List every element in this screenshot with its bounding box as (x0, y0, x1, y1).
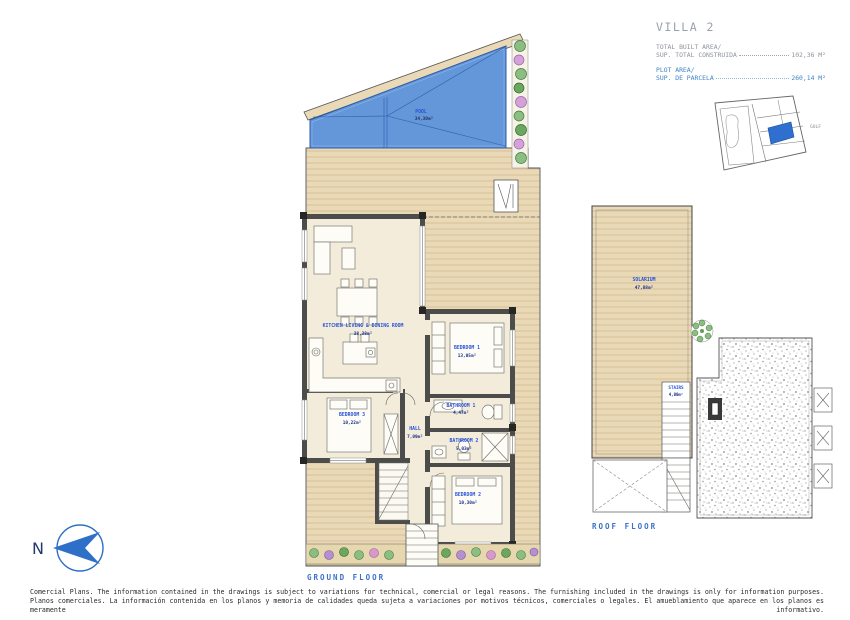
bedroom2-area: 10,30m² (459, 500, 478, 506)
built-area-label-en: TOTAL BUILT AREA/ (656, 43, 826, 51)
bathroom1-area: 4,47m² (453, 410, 469, 416)
kitchen-area: 38,38m² (354, 331, 373, 337)
dot-leader (739, 55, 790, 56)
roof-plant (691, 320, 713, 342)
dot-leader (716, 78, 790, 79)
north-arrow: N (18, 512, 128, 584)
roof-floor-plan: SOLARIUM 47,88m² STAIRS 4,00m² (585, 198, 840, 538)
golf-label: GOLF (810, 124, 821, 130)
site-plan-inset: GOLF (698, 92, 838, 178)
roof-floor-caption: ROOF FLOOR (592, 522, 657, 531)
title-block: VILLA 2 TOTAL BUILT AREA/ SUP. TOTAL CON… (656, 20, 826, 82)
disclaimer: Comercial Plans. The information contain… (30, 588, 824, 615)
ground-floor-caption: GROUND FLOOR (307, 573, 385, 582)
built-area-label-es: SUP. TOTAL CONSTRUIDA (656, 51, 737, 59)
floorplan-sheet: VILLA 2 TOTAL BUILT AREA/ SUP. TOTAL CON… (0, 0, 850, 620)
pool: POOL 34,30m² (310, 46, 506, 148)
bathroom1-label: BATHROOM 1 (447, 403, 476, 409)
bedroom3-label: BEDROOM 3 (339, 412, 365, 418)
bedroom3-area: 10,22m² (343, 420, 362, 426)
roof-units (814, 388, 832, 488)
disclaimer-line-es: Planos comerciales. La información conte… (30, 597, 824, 615)
pergola-void (593, 460, 667, 512)
planting-strip-right (512, 40, 528, 168)
bedroom2-label: BEDROOM 2 (455, 492, 481, 498)
solarium-area: 47,88m² (635, 285, 654, 291)
disclaimer-line-en: Comercial Plans. The information contain… (30, 588, 824, 597)
built-area-value: 102,36 M² (791, 51, 826, 59)
bathroom2-area: 5,03m² (456, 446, 472, 452)
bedroom1-label: BEDROOM 1 (454, 345, 480, 351)
villa-title: VILLA 2 (656, 20, 826, 34)
pool-area: 34,30m² (415, 116, 434, 122)
plot-area-value: 260,14 M² (791, 74, 826, 82)
outdoor-shower (494, 180, 518, 212)
north-label: N (32, 539, 44, 558)
stairs-area: 4,00m² (669, 392, 683, 397)
hall-area: 7,09m² (407, 434, 423, 440)
ground-floor-plan: POOL 34,30m² (300, 28, 550, 584)
kitchen-label: KITCHEN LIVING & DINING ROOM (323, 323, 404, 329)
site-boundary (715, 96, 806, 170)
hall-label: HALL (409, 426, 421, 432)
built-area-row: SUP. TOTAL CONSTRUIDA 102,36 M² (656, 51, 826, 59)
stairs-label: STAIRS (668, 385, 684, 390)
pool-label: POOL (415, 109, 427, 115)
bathroom2-label: BATHROOM 2 (450, 438, 479, 444)
bedroom1-area: 13,05m² (458, 353, 477, 359)
solarium-label: SOLARIUM (632, 277, 655, 283)
interior-stairs (379, 463, 408, 520)
entry-walkway (406, 524, 438, 566)
plot-area-label-en: PLOT AREA/ (656, 66, 826, 74)
gravel-roof (697, 338, 812, 518)
plot-area-label-es: SUP. DE PARCELA (656, 74, 714, 82)
plot-area-row: SUP. DE PARCELA 260,14 M² (656, 74, 826, 82)
